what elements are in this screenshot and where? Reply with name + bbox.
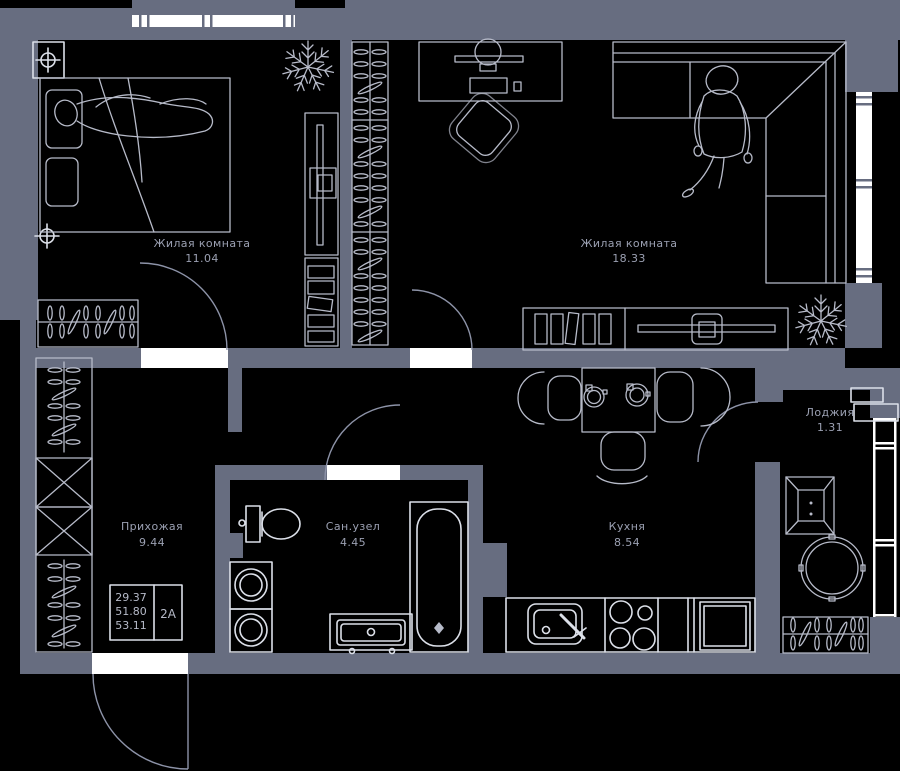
entrance-door bbox=[93, 674, 188, 769]
kitchen-counter bbox=[506, 598, 755, 652]
unit-type: 2А bbox=[160, 607, 177, 621]
room-area: 11.04 bbox=[185, 252, 219, 265]
tv bbox=[638, 325, 775, 332]
window-bedroom bbox=[132, 15, 295, 27]
room-name: Жилая комната bbox=[154, 237, 251, 250]
desk bbox=[419, 39, 562, 101]
room-name: Сан.узел bbox=[326, 520, 380, 533]
room-hallway-label: Прихожая 9.44 bbox=[121, 520, 183, 549]
room-area: 8.54 bbox=[614, 536, 640, 549]
dining-table bbox=[582, 368, 655, 432]
tv-stand bbox=[523, 308, 788, 350]
room-bathroom-label: Сан.узел 4.45 bbox=[326, 520, 380, 549]
window-living bbox=[856, 92, 872, 283]
wardrobe-living bbox=[352, 42, 388, 345]
vanity-sink bbox=[330, 614, 412, 654]
kitchen-sink bbox=[528, 604, 586, 644]
door-arc-bedroom bbox=[140, 263, 227, 350]
room-area: 4.45 bbox=[340, 536, 366, 549]
keyboard bbox=[470, 78, 507, 93]
room-area: 1.31 bbox=[817, 421, 843, 434]
door-arc-loggia bbox=[698, 402, 758, 462]
door-arc-living bbox=[412, 290, 472, 350]
info-box: 29.37 51.80 53.11 2А bbox=[110, 585, 182, 640]
wardrobe-loggia bbox=[783, 617, 868, 653]
room-loggia-label: Лоджия 1.31 bbox=[806, 406, 855, 434]
window-loggia bbox=[851, 388, 898, 617]
toilet bbox=[239, 506, 300, 542]
plant-icon bbox=[281, 41, 334, 93]
door-openings bbox=[92, 348, 472, 674]
plant-icon bbox=[794, 295, 847, 347]
wardrobe-bedroom bbox=[38, 300, 138, 347]
room-name: Кухня bbox=[609, 520, 646, 533]
area-value-3: 53.11 bbox=[115, 619, 147, 632]
monitor-icon bbox=[475, 39, 501, 65]
dining-chair bbox=[518, 368, 730, 484]
room-area: 18.33 bbox=[612, 252, 646, 265]
drain-icon bbox=[434, 622, 444, 634]
hallway-unit bbox=[36, 358, 92, 652]
loggia-round-table bbox=[799, 535, 865, 601]
bathtub bbox=[410, 502, 468, 652]
fridge bbox=[700, 602, 750, 650]
room-name: Прихожая bbox=[121, 520, 183, 533]
room-area: 9.44 bbox=[139, 536, 165, 549]
floor-plan: 29.37 51.80 53.11 2А bbox=[0, 0, 900, 771]
area-value-2: 51.80 bbox=[115, 605, 147, 618]
tv-unit-bedroom bbox=[305, 113, 338, 346]
room-name: Жилая комната bbox=[581, 237, 678, 250]
room-kitchen-label: Кухня 8.54 bbox=[609, 520, 646, 549]
loggia-armchair bbox=[786, 477, 834, 534]
floor-plan-svg: 29.37 51.80 53.11 2А bbox=[0, 0, 900, 771]
room-bedroom-label: Жилая комната 11.04 bbox=[154, 237, 251, 265]
room-name: Лоджия bbox=[806, 406, 855, 419]
washer-stack bbox=[230, 562, 272, 652]
person-standing bbox=[681, 62, 752, 198]
room-living-label: Жилая комната 18.33 bbox=[581, 237, 678, 265]
stove bbox=[610, 601, 655, 650]
place-setting bbox=[584, 384, 650, 407]
mouse bbox=[514, 82, 521, 91]
pillow bbox=[46, 158, 78, 206]
area-value-1: 29.37 bbox=[115, 591, 147, 604]
